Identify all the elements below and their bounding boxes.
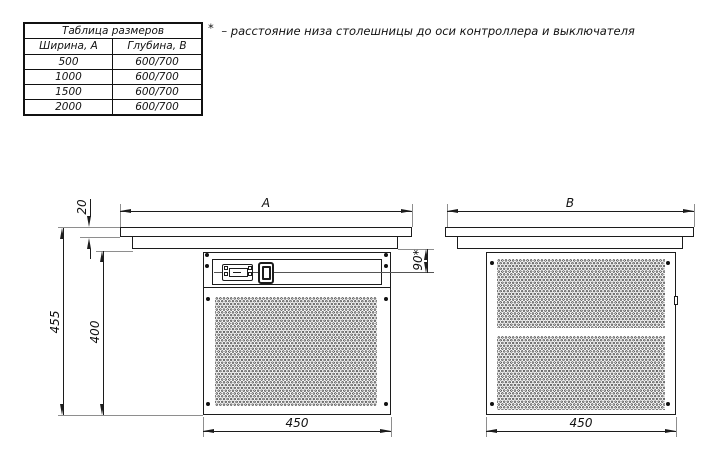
- footnote-text: – расстояние низа столешницы до оси конт…: [221, 24, 634, 38]
- table-cell-depth: 600/700: [113, 70, 201, 84]
- footnote: * – расстояние низа столешницы до оси ко…: [208, 24, 635, 38]
- extension-line: [58, 227, 120, 228]
- dim-label-b: B: [550, 196, 590, 210]
- dim-label-90: 90*: [411, 240, 425, 280]
- drawing-sheet: Таблица размеров Ширина, А Глубина, В 50…: [0, 0, 720, 461]
- extension-line: [203, 417, 204, 437]
- perforation-pattern: [497, 336, 665, 410]
- column-header-width: Ширина, А: [25, 39, 113, 54]
- extension-line: [676, 417, 677, 437]
- screw-dot: [206, 297, 210, 301]
- dim-line-450: [486, 431, 676, 432]
- screw-dot: [490, 402, 494, 406]
- dim-arrow: [203, 429, 214, 433]
- worktop: [120, 227, 412, 237]
- worktop: [445, 227, 694, 237]
- controller-display-segment: [233, 272, 241, 273]
- table-cell-width: 1500: [25, 85, 113, 99]
- extension-line: [80, 237, 120, 238]
- dim-label-400: 400: [88, 312, 102, 352]
- dim-line-b: [447, 211, 694, 212]
- screw-dot: [384, 253, 388, 257]
- table-title: Таблица размеров: [25, 24, 201, 39]
- controller-button: [248, 272, 252, 276]
- screw-dot: [384, 264, 388, 268]
- table-cell-depth: 600/700: [113, 85, 201, 99]
- dim-arrow: [87, 238, 91, 249]
- dim-label-20: 20: [75, 187, 89, 227]
- power-switch-rocker: [262, 266, 271, 280]
- dim-arrow: [120, 209, 131, 213]
- dim-line-455: [63, 228, 64, 415]
- table-row: 2000 600/700: [25, 100, 201, 114]
- dim-line-a: [120, 211, 412, 212]
- dim-label-450: 450: [277, 416, 317, 430]
- table-row: 1500 600/700: [25, 85, 201, 100]
- controller-button: [248, 266, 252, 270]
- footnote-marker: *: [208, 21, 214, 35]
- side-bracket: [674, 296, 678, 305]
- extension-line: [486, 417, 487, 437]
- dim-arrow: [401, 209, 412, 213]
- screw-dot: [666, 402, 670, 406]
- extension-line: [447, 204, 448, 227]
- table-header-row: Ширина, А Глубина, В: [25, 39, 201, 55]
- dim-arrow: [380, 429, 391, 433]
- screw-dot: [205, 253, 209, 257]
- table-cell-depth: 600/700: [113, 55, 201, 69]
- table-cell-width: 2000: [25, 100, 113, 114]
- extension-line: [391, 417, 392, 437]
- dim-arrow: [60, 404, 64, 415]
- perforation-pattern: [497, 259, 665, 328]
- dim-line-20: [90, 199, 91, 217]
- dim-arrow: [683, 209, 694, 213]
- dim-arrow: [665, 429, 676, 433]
- perforation-pattern: [215, 297, 377, 406]
- table-row: 500 600/700: [25, 55, 201, 70]
- table-row: 1000 600/700: [25, 70, 201, 85]
- screw-dot: [490, 261, 494, 265]
- table-cell-width: 1000: [25, 70, 113, 84]
- dim-line-20: [90, 249, 91, 259]
- table-cell-width: 500: [25, 55, 113, 69]
- dim-label-455: 455: [48, 302, 62, 342]
- dim-arrow: [100, 251, 104, 262]
- dim-line-400: [103, 251, 104, 415]
- dim-arrow: [447, 209, 458, 213]
- screw-dot: [666, 261, 670, 265]
- screw-dot: [206, 402, 210, 406]
- extension-line: [120, 204, 121, 227]
- screw-dot: [384, 297, 388, 301]
- column-header-depth: Глубина, В: [113, 39, 201, 54]
- controller-button: [224, 266, 228, 270]
- worktop-frame: [132, 236, 398, 249]
- worktop-frame: [457, 236, 683, 249]
- controller-button: [224, 272, 228, 276]
- extension-line: [58, 415, 203, 416]
- extension-line: [694, 204, 695, 227]
- dim-label-450: 450: [561, 416, 601, 430]
- screw-dot: [205, 264, 209, 268]
- dim-label-a: A: [246, 196, 286, 210]
- screw-dot: [384, 402, 388, 406]
- extension-line: [412, 204, 413, 227]
- dim-arrow: [60, 228, 64, 239]
- dim-arrow: [486, 429, 497, 433]
- dim-line-450: [203, 431, 391, 432]
- dimension-table: Таблица размеров Ширина, А Глубина, В 50…: [23, 22, 203, 116]
- table-cell-depth: 600/700: [113, 100, 201, 114]
- dim-arrow: [100, 404, 104, 415]
